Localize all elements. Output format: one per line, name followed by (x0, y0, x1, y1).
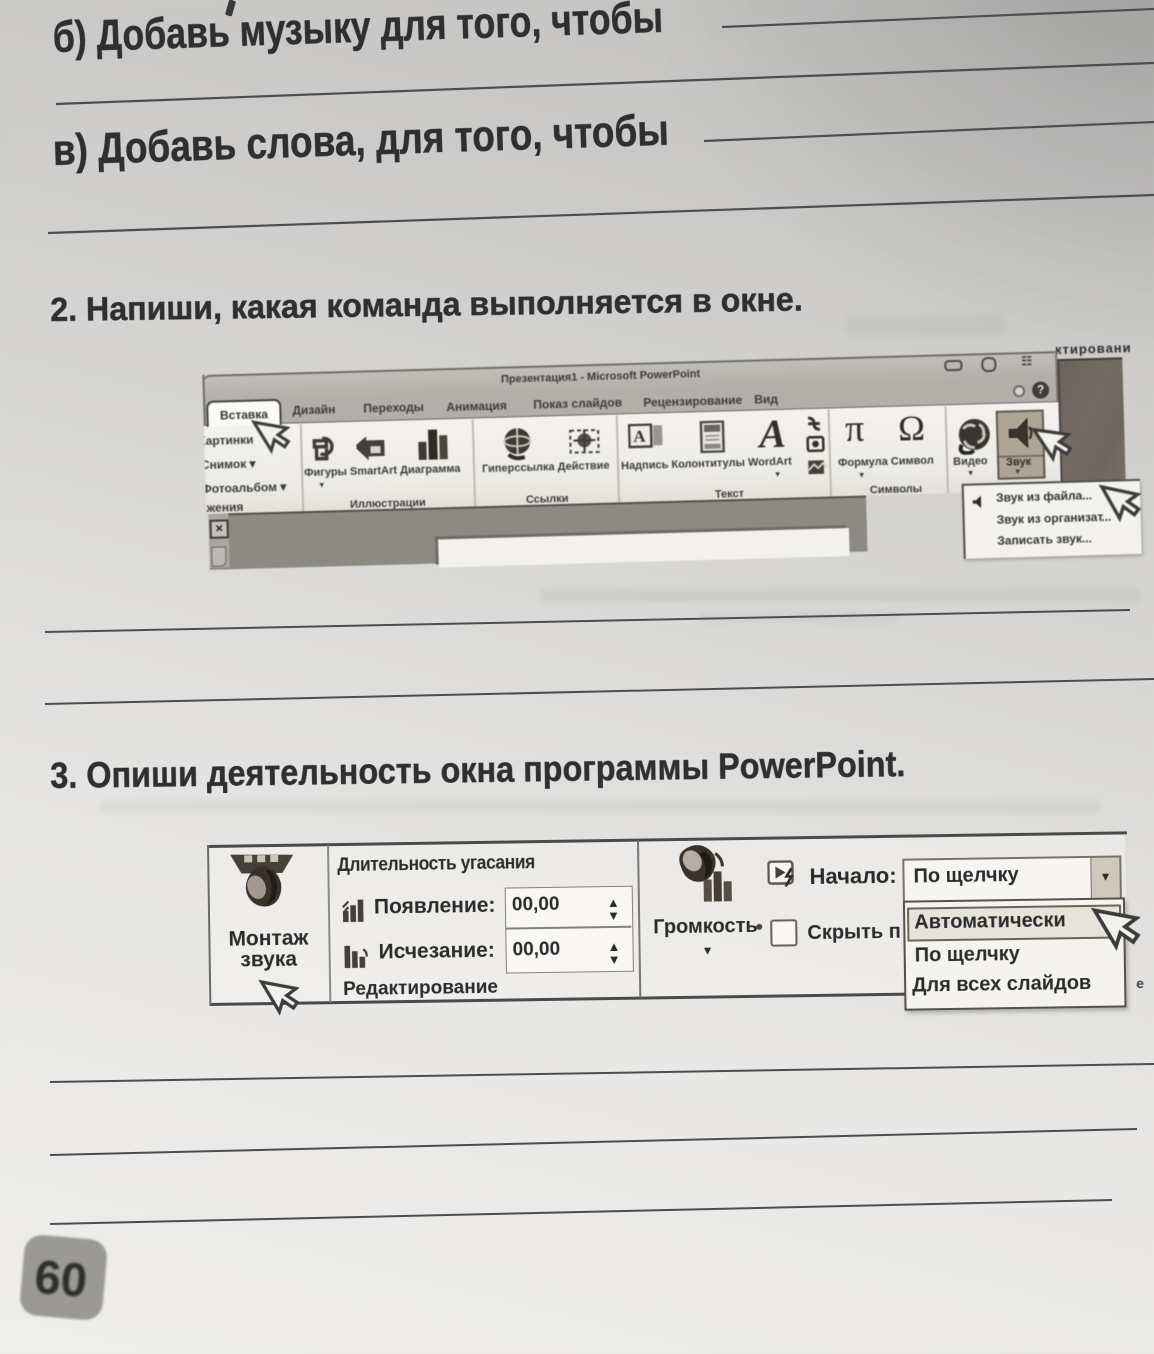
svg-text:A: A (757, 413, 787, 454)
svg-text:A: A (633, 427, 647, 446)
